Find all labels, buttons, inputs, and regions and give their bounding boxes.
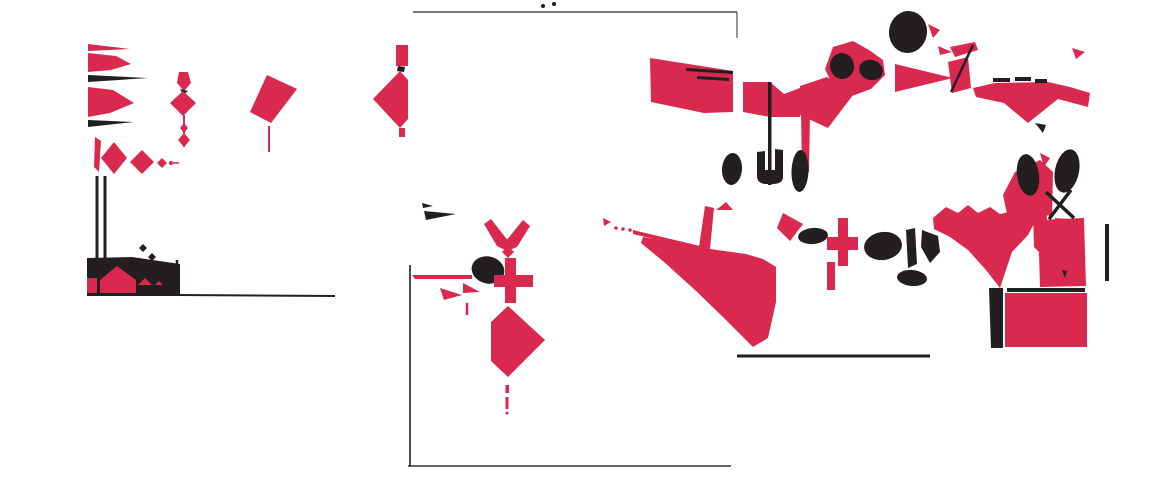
red-shape-36 xyxy=(396,45,408,66)
red-shape-86 xyxy=(1072,48,1085,59)
black-mark-34 xyxy=(541,4,545,8)
red-shape-53 xyxy=(491,306,545,377)
red-shape-9 xyxy=(180,123,188,133)
black-mark-37 xyxy=(397,66,405,72)
red-shape-90 xyxy=(716,202,733,210)
red-shape-55 xyxy=(506,397,509,409)
red-shape-43 xyxy=(505,220,530,251)
black-mark-92 xyxy=(797,227,828,246)
black-mark-41 xyxy=(424,211,456,220)
black-mark-114 xyxy=(1105,224,1109,281)
black-mark-98 xyxy=(921,230,940,263)
red-shape-94 xyxy=(827,237,858,250)
red-shape-105 xyxy=(1038,218,1086,287)
black-mark-27 xyxy=(180,295,335,296)
red-shape-1 xyxy=(88,53,131,72)
red-shape-62 xyxy=(641,206,776,347)
red-shape-77 xyxy=(938,46,952,55)
red-shape-100 xyxy=(933,205,1037,288)
red-shape-13 xyxy=(94,137,101,172)
red-shape-42 xyxy=(484,219,509,251)
red-shape-56 xyxy=(506,412,509,415)
black-mark-87 xyxy=(721,152,743,185)
black-mark-69 xyxy=(768,82,772,185)
red-shape-24 xyxy=(87,278,97,293)
black-mark-82 xyxy=(993,78,1010,82)
red-shape-60 xyxy=(628,228,632,232)
red-shape-78 xyxy=(950,42,978,57)
black-mark-35 xyxy=(552,2,556,6)
red-shape-54 xyxy=(506,385,510,393)
black-mark-108 xyxy=(989,288,1003,348)
red-shape-74 xyxy=(895,64,953,92)
red-shape-3 xyxy=(88,87,134,117)
black-mark-85 xyxy=(1035,123,1046,133)
red-shape-5 xyxy=(177,72,191,91)
red-shape-14 xyxy=(101,142,127,174)
black-mark-4 xyxy=(88,120,134,127)
black-mark-28 xyxy=(139,244,147,252)
abstract-composition-canvas xyxy=(0,0,1160,480)
red-shape-0 xyxy=(88,44,130,51)
red-shape-76 xyxy=(928,24,940,38)
red-shape-107 xyxy=(1005,293,1087,347)
red-shape-38 xyxy=(373,71,408,128)
black-mark-2 xyxy=(88,75,148,82)
red-shape-10 xyxy=(178,133,190,147)
red-shape-49 xyxy=(494,275,533,287)
red-shape-95 xyxy=(827,262,835,290)
red-shape-64 xyxy=(650,58,733,113)
red-shape-11 xyxy=(250,75,297,123)
red-shape-51 xyxy=(440,288,462,300)
red-shape-81 xyxy=(973,82,1090,123)
red-shape-59 xyxy=(621,227,625,231)
red-shape-58 xyxy=(614,226,618,230)
red-shape-17 xyxy=(169,161,173,165)
black-mark-96 xyxy=(862,229,904,262)
red-shape-50 xyxy=(463,283,480,293)
red-shape-39 xyxy=(399,128,405,137)
red-shape-47 xyxy=(412,275,472,279)
red-black-abstract-graphic xyxy=(0,0,1160,480)
red-shape-15 xyxy=(130,150,154,174)
black-mark-99 xyxy=(896,269,927,288)
black-mark-84 xyxy=(1035,79,1047,83)
black-mark-97 xyxy=(906,228,917,268)
black-mark-40 xyxy=(422,203,433,208)
red-shape-16 xyxy=(157,158,167,168)
black-mark-75 xyxy=(886,9,929,56)
black-mark-83 xyxy=(1015,77,1031,81)
red-shape-7 xyxy=(170,91,196,116)
red-shape-57 xyxy=(603,218,611,226)
black-mark-111 xyxy=(1051,147,1084,195)
